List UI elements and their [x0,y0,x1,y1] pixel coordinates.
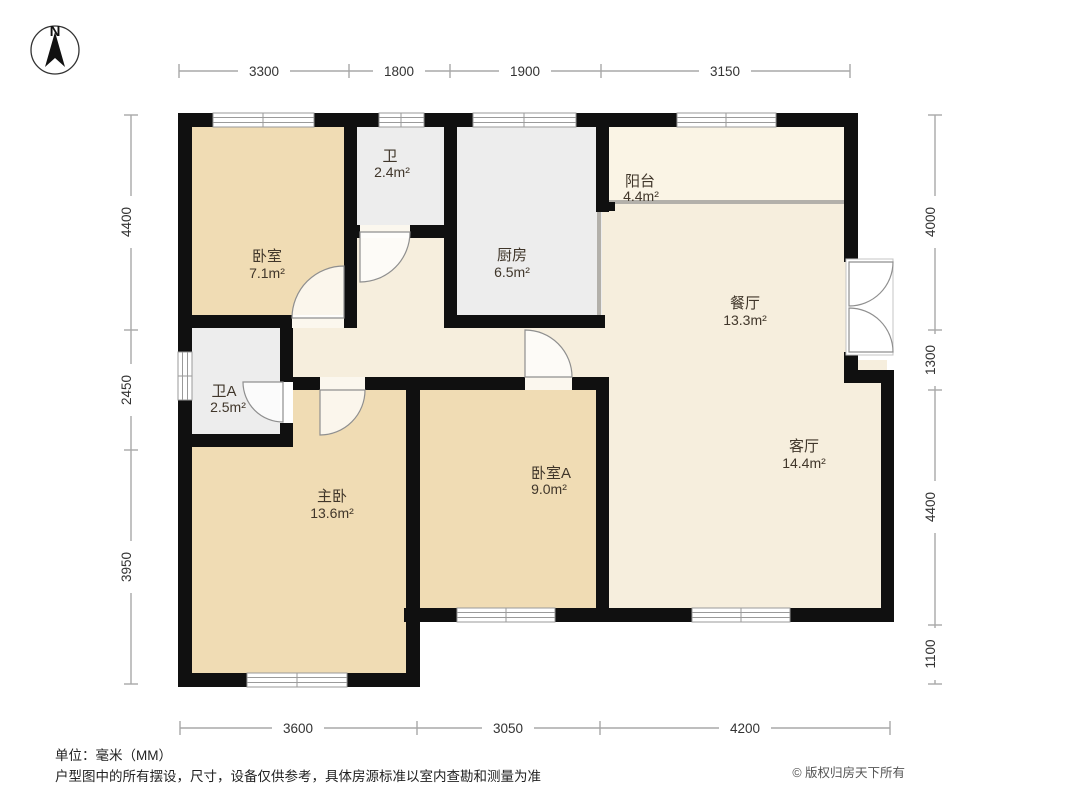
bedroomA-door-threshold [525,377,572,390]
compass: N [31,23,79,74]
room-label-bedroom1: 卧室 [252,248,282,265]
dim-right-1: 4000 [923,207,938,237]
dimension-bottom: 3600 3050 4200 [180,718,890,738]
window-living [692,608,790,622]
room-label-bedroomA: 卧室A [531,465,571,482]
kitchen-fill [450,120,602,318]
window-bath1 [379,113,424,127]
room-label-living: 客厅 [789,438,819,455]
dimension-left: 4400 2450 3950 [119,115,141,684]
dimension-top: 3300 1800 1900 3150 [179,61,850,81]
unit-note: 单位：毫米（MM） [55,747,172,763]
dim-right-3: 4400 [923,492,938,522]
dim-top-1: 3300 [249,64,279,79]
footer: 单位：毫米（MM） 户型图中的所有摆设，尺寸，设备仅供参考，具体房源标准以室内查… [55,747,905,784]
room-label-kitchen: 厨房 [497,247,527,264]
north-arrow-icon [45,32,65,67]
room-area-kitchen: 6.5m² [494,264,530,280]
room-area-balcony: 4.4m² [623,188,659,204]
window-bathA [178,352,192,400]
room-area-master: 13.6m² [310,505,354,521]
disclaimer: 户型图中的所有摆设，尺寸，设备仅供参考，具体房源标准以室内查勘和测量为准 [55,768,541,784]
bathA-fill [185,320,288,440]
dim-bottom-2: 3050 [493,721,523,736]
dim-right-4: 1100 [923,639,938,668]
room-label-dining: 餐厅 [730,295,760,312]
dim-bottom-1: 3600 [283,721,313,736]
dim-left-1: 4400 [119,207,134,237]
room-area-bathA: 2.5m² [210,399,246,415]
room-label-bathA: 卫A [211,383,236,400]
room-label-bath1: 卫 [382,148,397,165]
dim-top-2: 1800 [384,64,414,79]
dim-right-2: 1300 [923,345,938,375]
room-area-bedroom1: 7.1m² [249,265,285,281]
kitchen-sliding-line [597,212,601,318]
floorplan-page: N [0,0,1066,800]
master-door-threshold [320,377,365,390]
window-bedroom1 [213,113,314,127]
floorplan-canvas: N [0,0,1066,800]
window-kitchen [473,113,576,127]
window-bedroomA [457,608,555,622]
room-area-living: 14.4m² [782,455,826,471]
dim-top-4: 3150 [710,64,740,79]
bedroomA-fill [413,383,600,615]
room-area-bath1: 2.4m² [374,164,410,180]
dim-left-3: 3950 [119,552,134,582]
entry-double-door [846,259,893,355]
window-master [247,673,347,687]
room-label-master: 主卧 [317,488,347,505]
room-area-dining: 13.3m² [723,312,767,328]
room-area-bedroomA: 9.0m² [531,481,567,497]
window-balcony [677,113,776,127]
dim-left-2: 2450 [119,375,134,405]
copyright: © 版权归房天下所有 [792,765,905,780]
dim-bottom-3: 4200 [730,721,760,736]
dimension-right: 4000 1300 4400 1100 [923,115,945,684]
dim-top-3: 1900 [510,64,540,79]
